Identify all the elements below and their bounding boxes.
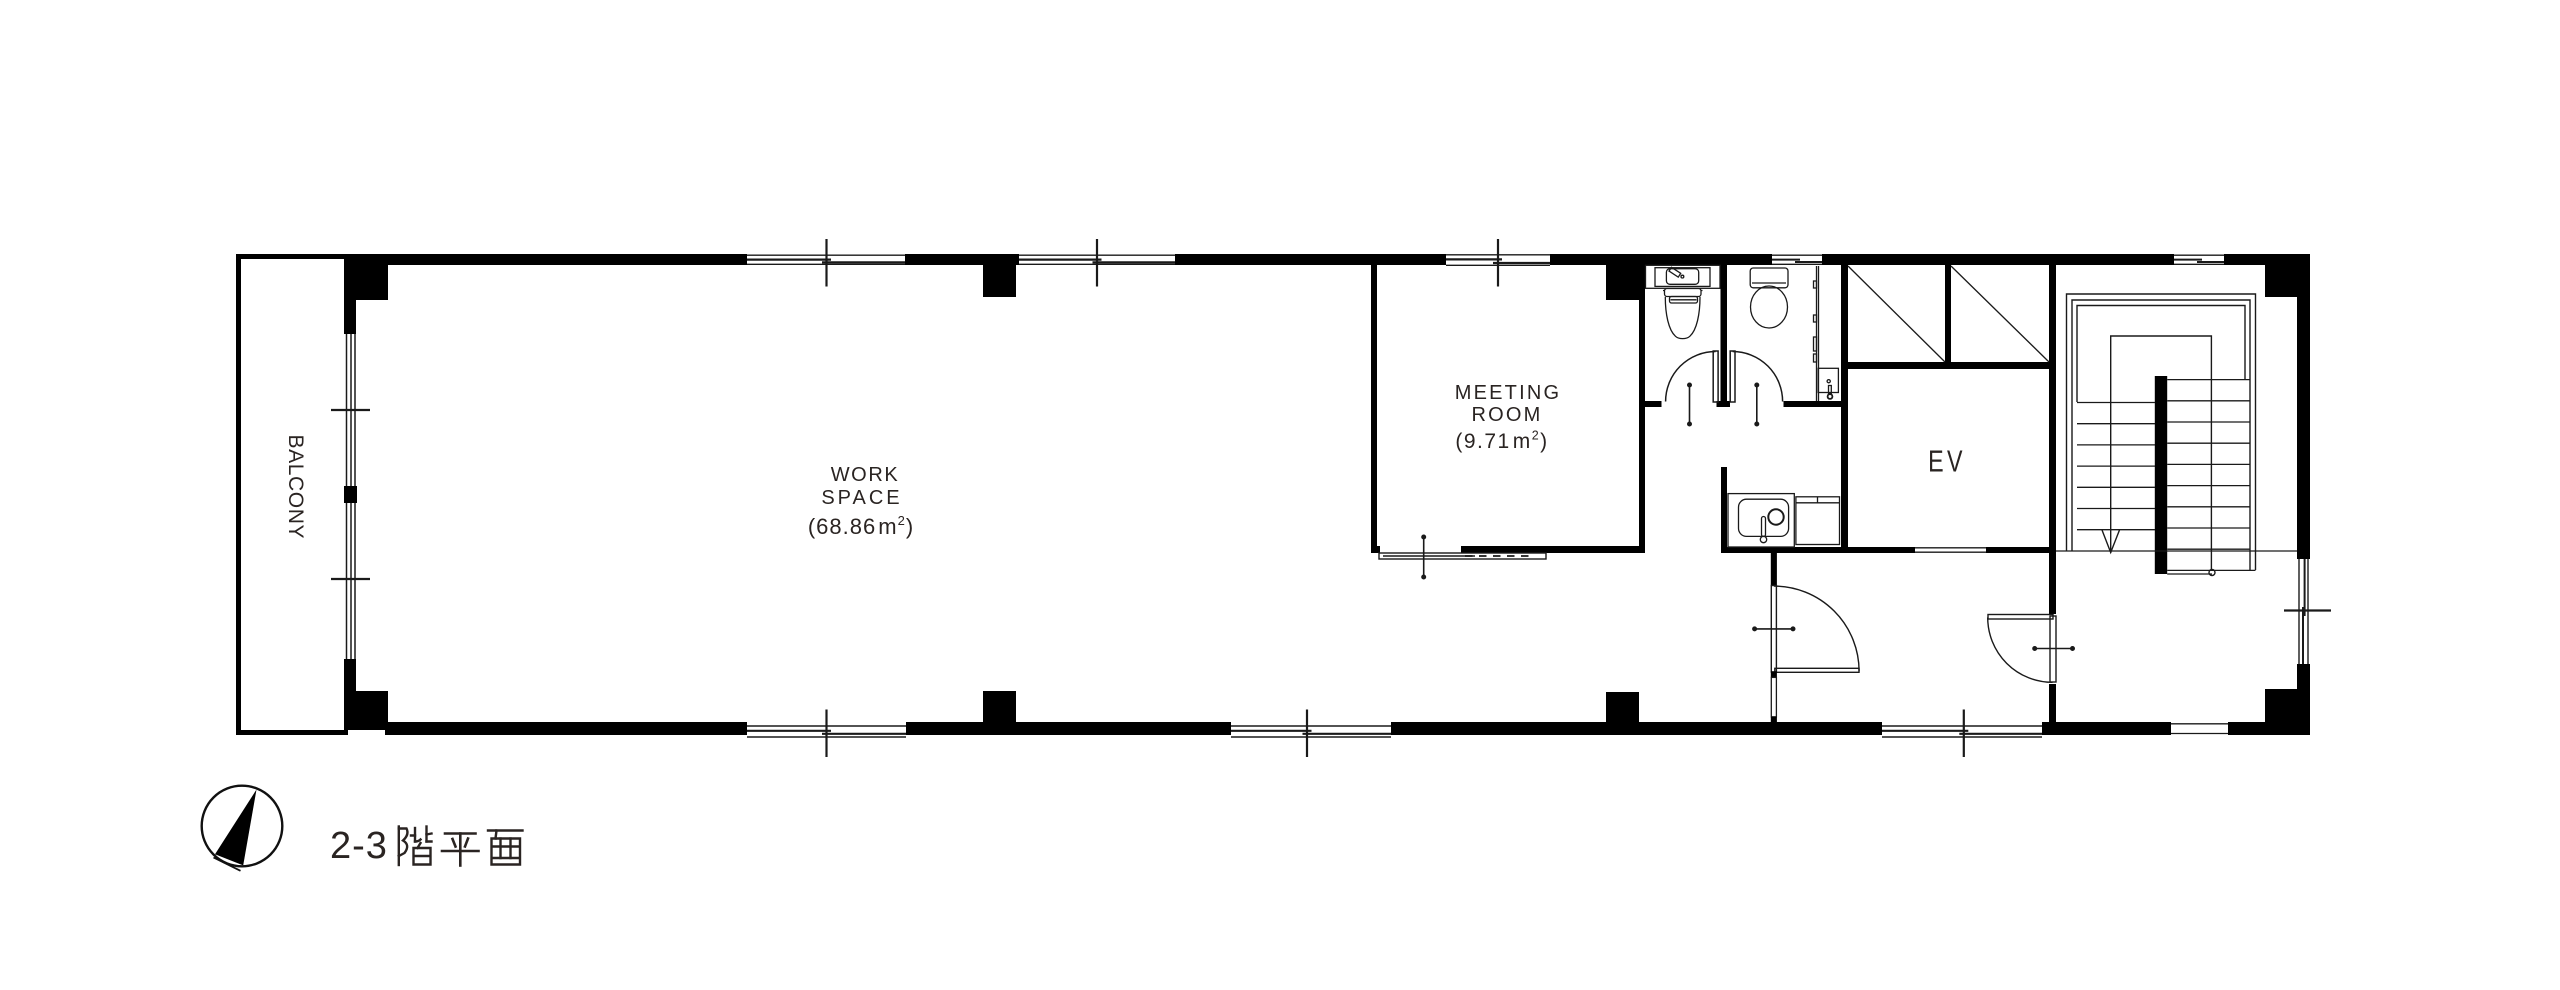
svg-text:BALCONY: BALCONY <box>284 435 307 540</box>
svg-text:SPACE: SPACE <box>821 487 902 509</box>
svg-text:2-3: 2-3 <box>330 825 388 867</box>
svg-text:WORK: WORK <box>831 464 900 486</box>
svg-text:MEETING: MEETING <box>1455 382 1562 404</box>
svg-text:ROOM: ROOM <box>1471 404 1542 426</box>
svg-text:EV: EV <box>1928 443 1966 478</box>
